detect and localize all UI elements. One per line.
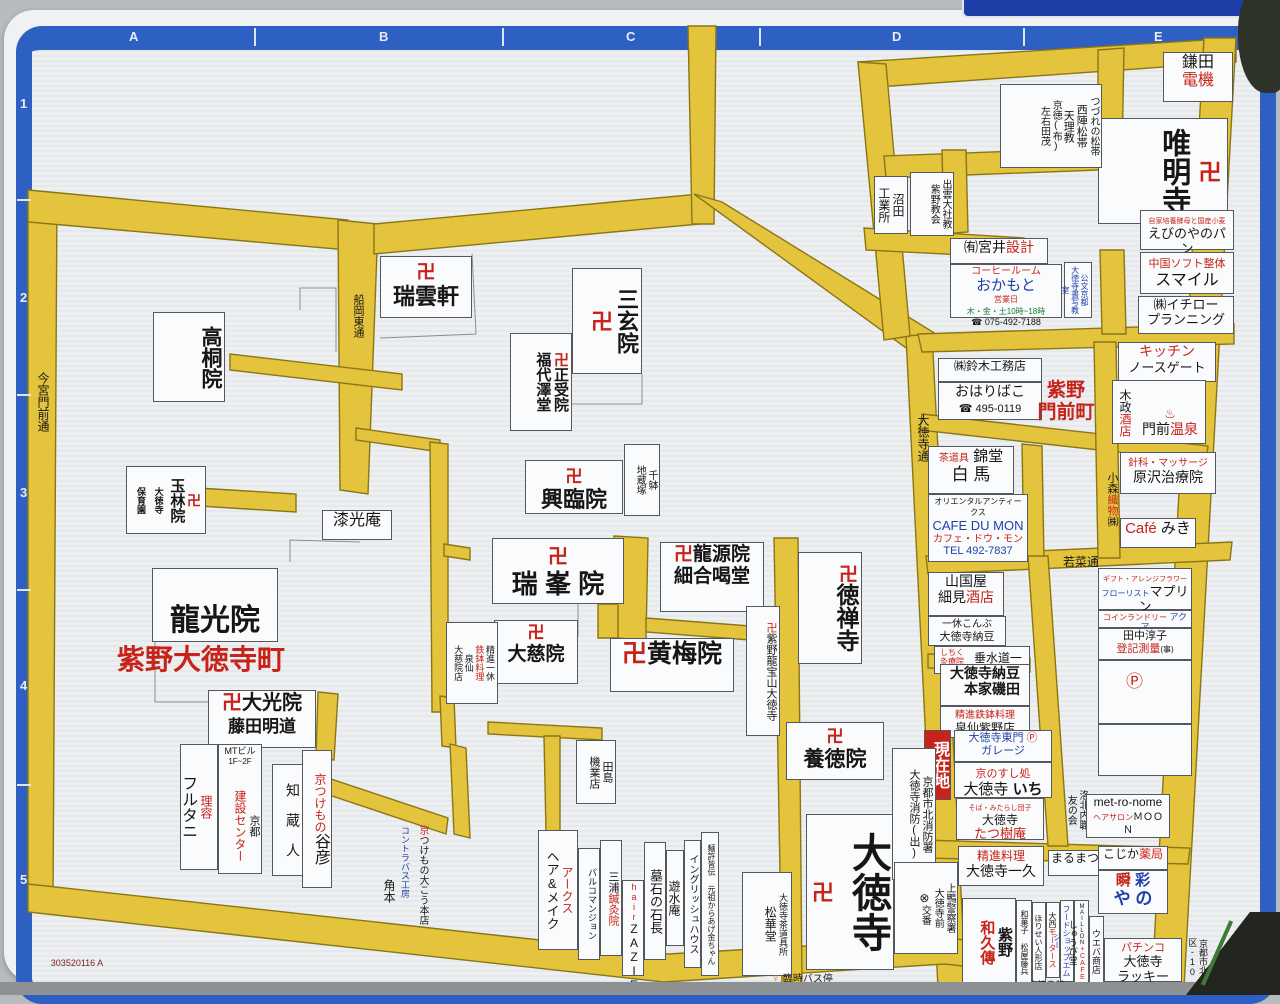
shop-furutani-barber-text: 理容 — [199, 795, 213, 819]
shop-natto-isoda-text: 大徳寺納豆 — [950, 665, 1020, 681]
district-murasakino-daitokujicho-text: 紫野大徳寺町 — [117, 644, 285, 675]
shop-ebinoya-pan-text: 自家培養酵母と国産小麦 — [1149, 218, 1226, 225]
temple-ryuhozan-daitokuji: 卍紫野龍宝山大徳寺 — [746, 606, 780, 736]
shop-monzen-onsen-text: ♨ — [1164, 406, 1176, 421]
shop-suzuki-komuten: ㈱鈴木工務店 — [938, 358, 1042, 382]
temple-korinin-text: 卍 — [566, 467, 583, 486]
shop-parco-mansion-text: パルコマンジョン — [587, 868, 597, 940]
street-sentai-jizozuka-text: 地蔵塚 — [634, 465, 645, 495]
temple-shojuin-text: 福代澤堂 — [534, 352, 551, 412]
shop-kensetsu-center-text: 京都 — [248, 815, 260, 837]
street-wakana-dori-text: 若菜通 — [1063, 555, 1099, 569]
shop-cafe-du-mon: オリエンタルアンティークスCAFE DU MONカフェ・ドウ・モンTEL 492… — [928, 494, 1028, 562]
temple-korinin: 卍興臨院 — [525, 460, 623, 514]
plate-id: 303520116 A — [32, 958, 122, 970]
shop-tajima-kigyoten-text: 田島 — [601, 761, 613, 783]
shop-tanaka-toki-text: 田中淳子 — [1123, 630, 1167, 642]
shop-izusen-daijiin-text: 鉄鉢料理 — [474, 645, 484, 681]
shop-shubido-cafe-text: MAILLON — [1079, 904, 1085, 946]
shop-komori-orimono: 小森織物㈱ — [1096, 464, 1118, 534]
temple-yotokuin: 卍養徳院 — [786, 722, 884, 780]
shop-tatsukian-text: 大徳寺 — [982, 813, 1018, 827]
temple-ryuhozan-daitokuji-text: 卍 — [765, 622, 777, 633]
temple-yuimyoji-text: 卍 — [1195, 160, 1221, 183]
shop-okamoto-coffee-text: ☎ 075-492-7188 — [971, 317, 1041, 327]
shop-shunsai-yano-text: 彩 — [1135, 872, 1150, 889]
parking-icon-1: Ⓟ — [1126, 672, 1143, 691]
shop-kitchen-northgate-text: キッチン — [1139, 343, 1195, 359]
temple-gyokurinin-text: 玉林院 — [168, 478, 185, 523]
shop-shokado-text: 大徳寺茶道具所 — [778, 893, 788, 956]
temple-yuimyoji-text: 唯明寺 — [1158, 128, 1190, 215]
shop-cafe-miki-text: Café — [1125, 520, 1157, 537]
temple-zuihoin-text: 瑞 峯 院 — [512, 569, 604, 599]
shop-pachinko-lucky: パチンコ大徳寺ラッキー — [1104, 938, 1182, 982]
shop-yamaguniya-text: 細見 — [938, 589, 966, 605]
shop-kitchen-northgate-text: ノースゲート — [1128, 360, 1205, 375]
shop-kumon-kyoshitsu: 公文京都大徳寺書写教室 — [1064, 262, 1092, 318]
shop-kumon-kyoshitsu-text: 大徳寺書写教室 — [1061, 266, 1079, 314]
ground-strip — [0, 982, 1280, 995]
shop-harasawa-chiryoin-text: 原沢治療院 — [1133, 469, 1203, 485]
shop-komori-orimono-text: ㈱ — [1106, 516, 1118, 527]
shop-miura-shinkyuin-text: 鍼灸院 — [607, 893, 619, 926]
shop-nishijin-block: つづれの松帯西陣松帯天理教京徳(布)左右田茂 — [1000, 84, 1102, 168]
temple-shikkoan: 漆光庵 — [322, 510, 392, 540]
building-police-box-text: 交番 — [919, 905, 930, 925]
shop-pachinko-lucky-text: パチンコ — [1121, 942, 1165, 954]
shop-monzen-onsen-text: 温泉 — [1170, 421, 1198, 437]
shop-hair-zazie: hairZAZIE — [622, 880, 644, 976]
shop-wakuden-text: 紫野 — [996, 927, 1013, 957]
shop-ishicho-boseki-text: 墓石の石長 — [648, 869, 663, 934]
shop-ichima-sushi: 京のすし処大徳寺 いちま — [954, 762, 1052, 798]
parking-icon-1-text: Ⓟ — [1126, 672, 1143, 691]
shop-oharibako: おはりばこ☎ 495-0119 — [938, 382, 1042, 420]
temple-ryogenin: 卍龍源院細合喝堂 — [660, 542, 764, 612]
cell-empty-2 — [1098, 724, 1192, 776]
shop-kitchen-northgate: キッチンノースゲート — [1118, 342, 1216, 382]
shop-tatsukian-text: そば・みたらし団子 — [969, 805, 1032, 812]
shop-ichima-sushi-text: 京のすし処 — [976, 768, 1031, 780]
temple-gyokurinin: 卍玉林院大徳寺保育園 — [126, 466, 206, 534]
shop-kamada-denki: 鎌田電機 — [1163, 52, 1233, 102]
shop-ishicho-boseki: 墓石の石長 — [644, 842, 666, 960]
shop-kojika-yakkyoku-text: こじか — [1103, 847, 1139, 861]
shop-nishijin-block-text: 西陣松帯 — [1075, 104, 1087, 148]
shop-english-house-text: イングリッシュハウス — [687, 854, 698, 954]
shop-nishikido-text: 錦堂 — [969, 448, 1003, 465]
shop-contrabass-kobo: コントラバス工房 — [396, 812, 410, 912]
shop-mt-building-text: MTビル — [225, 746, 256, 756]
temple-kotoin-text: 高桐院 — [199, 326, 222, 389]
shop-shubido-cafe: MAILLON+CAFEしゅうび堂 — [1074, 900, 1089, 984]
cell-empty-1 — [1098, 660, 1192, 724]
shop-oharibako-text: おはりばこ — [955, 383, 1025, 399]
shop-mt-building-text: 1F~2F — [228, 757, 251, 766]
shop-suzuki-komuten-text: ㈱鈴木工務店 — [954, 359, 1026, 373]
shop-arcs-hair-text: アークス — [560, 866, 574, 914]
shop-kimasa-saketen: 木政酒店 — [1114, 384, 1132, 442]
shop-yamaguniya-text: 山国屋 — [945, 573, 987, 589]
shop-shokado-text: 松華堂 — [763, 906, 777, 942]
shop-okamoto-coffee-text: 営業日 — [994, 295, 1018, 304]
building-police-box-text: 大徳寺前 — [932, 888, 943, 928]
shop-wakuden-text: 和久傳 — [978, 920, 995, 965]
shop-daiko-honten-text: つけもの大こう本店 — [417, 835, 428, 925]
shop-furutani-barber-text: フルタニ — [179, 775, 196, 839]
temple-ryogenin-text: 卍 — [674, 544, 693, 565]
shop-tanihiko-text: 京つけもの — [313, 773, 327, 833]
shop-kamada-denki-text: 電機 — [1182, 72, 1214, 89]
shop-marumatsu-text: まるまつ — [1051, 851, 1099, 865]
shop-numata-text: 工業所 — [877, 187, 891, 223]
shop-english-house: イングリッシュハウス — [684, 840, 701, 968]
shop-smile-seitai: 中国ソフト整体スマイル — [1140, 252, 1234, 294]
shop-cafe-du-mon-text: TEL 492-7837 — [943, 545, 1012, 557]
map-labels: 卍高桐院卍瑞雲軒船岡東通三玄院卍卍正受院福代澤堂卍興臨院卍玉林院大徳寺保育園漆光… — [0, 0, 1280, 995]
building-kita-fire-station-text: 大徳寺消防(出) — [908, 769, 920, 859]
shop-ebinoya-pan: 自家培養酵母と国産小麦えびのやのパン — [1140, 210, 1234, 250]
shop-daiko-honten-text: 京 — [417, 825, 428, 835]
shop-harasawa-chiryoin: 針科・マッサージ原沢治療院 — [1120, 452, 1216, 494]
temple-tokuzenji-text: 徳禅寺 — [833, 583, 859, 652]
shop-arcs-hair-text: ヘア&メイク — [545, 850, 560, 930]
street-funaoka-higashi-dori-text: 船岡東通 — [352, 294, 364, 338]
shop-tanihiko-text: 谷彦 — [312, 833, 329, 865]
temple-yotokuin-text: 卍 — [827, 727, 844, 746]
temple-daijiin: 卍大慈院 — [494, 620, 578, 684]
shop-tatsukian-text: たつ樹庵 — [974, 826, 1026, 841]
shop-kensetsu-center-text: 建設センター — [233, 790, 247, 862]
shop-natto-isoda: 大徳寺納豆 本家磯田 — [940, 664, 1030, 706]
shop-horisei-ningyo-text: ほりせい人形店 — [1034, 914, 1043, 970]
shop-horisei-ningyo: ほりせい人形店 — [1032, 902, 1046, 982]
temple-shojuin-text: 正受院 — [552, 367, 569, 412]
shop-shunsai-yano: 瞬 彩や の — [1098, 870, 1168, 914]
street-imamiya-monzen-dori-text: 今宮門前通 — [36, 372, 50, 432]
shop-natto-isoda-text: 本家磯田 — [950, 681, 1020, 697]
shop-tajima-kigyoten-text: 機業店 — [588, 756, 600, 789]
building-kita-fire-station: 京都市北消防署大徳寺消防(出) — [892, 748, 936, 880]
temple-shojuin-text: 卍 — [552, 352, 569, 367]
shop-daiko-honten: 京つけもの大こう本店 — [410, 812, 428, 938]
shop-cafe-du-mon-text: オリエンタルアンティークス — [934, 497, 1021, 517]
temple-ryogenin-text: 細合喝堂 — [674, 566, 750, 587]
shop-ichiro-planning-text: プランニング — [1147, 312, 1225, 327]
building-police-box-text: ⊗ — [917, 891, 931, 905]
shop-tarumizu-text: 垂水道一 — [974, 651, 1022, 665]
shop-tomon-garage-text: ガレージ — [981, 745, 1025, 757]
shop-contrabass-kobo-text: コントラバス工房 — [400, 826, 410, 898]
temple-daikoin-text: 卍 — [222, 692, 242, 714]
shop-pachinko-lucky-text: 大徳寺 — [1123, 954, 1162, 969]
shop-matsuya-tohei: 和菓子 松屋藤兵 — [1016, 900, 1032, 984]
shop-numata: 沼田工業所 — [874, 176, 908, 234]
shop-shubido-cafe-text: +CAFE — [1079, 946, 1086, 981]
shop-ueba-shoten: ウエバ商店 — [1089, 916, 1104, 986]
shop-shunsai-yano-text: 瞬 — [1116, 872, 1135, 889]
shop-shichiku-kyuryoin-text: しちく — [940, 648, 964, 657]
shop-monzen-onsen-text: 門前 — [1142, 421, 1170, 437]
shop-nishijin-block-text: つづれの松帯 — [1088, 96, 1099, 156]
shop-tanaka-toki: 田中淳子登記測量(事) — [1098, 628, 1192, 660]
shop-izusen-daijiin: 精進一休鉄鉢料理泉仙大慈院店 — [446, 622, 498, 704]
shop-kumon-kyoshitsu-text: 公文京都 — [1080, 274, 1089, 306]
temple-daijiin-text: 卍 — [528, 623, 545, 642]
district-murasakino-monzencho-text: 紫野 — [1047, 380, 1085, 401]
shop-komori-orimono-text: 織物 — [1106, 494, 1118, 516]
shop-tanaka-toki-text: 登記測量 — [1116, 643, 1160, 655]
temple-shikkoan-text: 漆光庵 — [333, 512, 381, 529]
shop-kojika-yakkyoku: こじか薬局 — [1098, 846, 1168, 870]
shop-kakumoto-text: 角本 — [382, 879, 396, 903]
shop-nishijin-block-text: 左右田茂 — [1038, 106, 1049, 146]
temple-daitokuji-text: 大徳寺 — [846, 832, 890, 952]
temple-sangenin-text: 卍 — [588, 310, 613, 332]
shop-mapurin-text: ギフト・アレンジフラワー — [1103, 576, 1187, 583]
shop-miura-shinkyuin-text: 三浦 — [607, 871, 619, 893]
building-kita-fire-station-text: 京都市北消防署 — [921, 776, 933, 853]
shop-rakuhoku-naishoku-text: 友の会 — [1065, 795, 1076, 825]
shop-okamoto-coffee-text: コーヒールーム — [971, 266, 1041, 277]
shop-nishikido-text: 白 馬 — [952, 465, 991, 484]
shop-kojika-yakkyoku-text: 薬局 — [1139, 847, 1163, 861]
temple-yuimyoji: 卍唯明寺 — [1098, 118, 1228, 224]
shop-metronome-moon-text: met-ro-nome — [1094, 795, 1163, 809]
temple-zuiunken-text: 瑞雲軒 — [393, 284, 459, 309]
shop-kimasa-saketen-text: 木政 — [1118, 389, 1132, 413]
shop-miyai-sekkei-text: ㈲宮井 — [964, 239, 1006, 255]
shop-okamoto-coffee: コーヒールームおかもと営業日木・金・土10時~18時☎ 075-492-7188 — [950, 264, 1062, 318]
shop-izusen-daijiin-text: 精進一休 — [485, 645, 495, 681]
building-police-box-text: 上鴨警察署 — [944, 883, 955, 933]
shop-okamoto-coffee-text: おかもと — [976, 277, 1036, 294]
shop-izusen-murasakino-text: 精進鉄鉢料理 — [955, 710, 1015, 721]
shop-miyai-sekkei-text: 設計 — [1006, 239, 1034, 255]
shop-chikurajin: 知 蔵 人 — [272, 764, 304, 876]
shop-numata-text: 沼田 — [891, 193, 905, 217]
photo-scene: ABCDE 12345 — [0, 0, 1280, 995]
shop-tanaka-toki-text: (事) — [1160, 645, 1173, 654]
shop-coin-laundry-aqua-text: コインランドリー — [1103, 613, 1167, 622]
district-murasakino-daitokujicho: 紫野大徳寺町 — [108, 644, 294, 678]
shop-yamaguniya-text: 酒店 — [966, 589, 994, 605]
temple-yotokuin-text: 養徳院 — [804, 748, 867, 771]
shop-karaage-kinchan-text: 麺許皆伝 元祖からあげ金ちゃん — [707, 844, 716, 965]
shop-kakumoto: 角本 — [380, 864, 396, 918]
shop-tomon-garage: 大徳寺東門 Ⓟガレージ — [954, 730, 1052, 762]
shop-cafe-miki: Café みき — [1120, 518, 1196, 548]
temple-ryokoin: 龍光院 — [152, 568, 278, 642]
shop-miyai-sekkei: ㈲宮井設計 — [950, 238, 1048, 264]
shop-parco-mansion: パルコマンジョン — [578, 848, 600, 960]
building-police-box: 上鴨警察署大徳寺前⊗交番 — [894, 862, 958, 954]
shop-matsuya-tohei-text: 和菓子 松屋藤兵 — [1020, 910, 1029, 975]
shop-tomon-garage-text: Ⓟ — [1023, 732, 1037, 744]
shop-komori-orimono-text: 小森 — [1106, 472, 1118, 494]
temple-daijiin-text: 大慈院 — [507, 644, 564, 665]
temple-daitokuji: 大徳寺卍 — [806, 814, 894, 970]
shop-cafe-du-mon-text: カフェ・ドウ・モン — [933, 534, 1023, 545]
district-murasakino-monzencho: 紫野門前町 — [1036, 380, 1096, 424]
temple-obaiin-text: 卍 — [622, 640, 647, 668]
shop-oharibako-text: ☎ 495-0119 — [959, 403, 1021, 415]
temple-gyokurinin-text: 大徳寺 — [154, 487, 164, 514]
shop-hair-zazie-text: hair — [629, 882, 639, 922]
shop-izumo-taishakyo: 出雲大社教紫野教会 — [910, 172, 954, 236]
shop-ichiro-planning-text: ㈱イチロー — [1153, 297, 1218, 312]
shop-furutani-barber: 理容フルタニ — [180, 744, 218, 870]
temple-ryogenin-text: 龍源院 — [693, 544, 750, 565]
temple-tokuzenji-text: 卍 — [836, 564, 857, 583]
temple-shojuin: 卍正受院福代澤堂 — [510, 333, 572, 431]
shop-ikkyu-konbu: 一休こんぶ大徳寺納豆 — [928, 616, 1006, 646]
shop-shokado: 大徳寺茶道具所松華堂 — [742, 872, 792, 976]
shop-ikkyu-konbu-text: 大徳寺納豆 — [940, 631, 995, 643]
shop-mapurin: ギフト・アレンジフラワーフローリストマプリン — [1098, 568, 1192, 610]
temple-obaiin: 卍黄梅院 — [610, 638, 734, 692]
temple-daikoin-text: 大光院 — [242, 692, 302, 714]
shop-harasawa-chiryoin-text: 針科・マッサージ — [1128, 458, 1208, 469]
shop-tajima-kigyoten: 田島機業店 — [576, 740, 616, 804]
shop-cafe-miki-text: みき — [1157, 520, 1191, 537]
temple-sangenin-text: 三玄院 — [614, 288, 639, 354]
temple-tokuzenji: 卍徳禅寺 — [798, 552, 862, 664]
shop-yusuian: 遊水庵 — [666, 850, 684, 946]
temple-daikoin-text: 藤田明道 — [228, 717, 296, 736]
shop-ikkyu-ryori: 精進料理大徳寺一久 — [958, 846, 1044, 886]
shop-rakuhoku-naishoku: 洛北内職友の会 — [1060, 778, 1088, 842]
street-sentai-jizozuka-text: 千躰 — [646, 470, 657, 490]
shop-chikurajin-text: 知 蔵 人 — [285, 783, 301, 857]
shop-smile-seitai-text: 中国ソフト整体 — [1149, 258, 1226, 270]
shop-ikkyu-konbu-text: 一休こんぶ — [942, 619, 992, 630]
street-funaoka-higashi-dori: 船岡東通 — [346, 274, 364, 358]
temple-kotoin: 高桐院 — [153, 312, 225, 402]
shop-okamoto-coffee-text: 木・金・土10時~18時 — [967, 307, 1045, 316]
temple-daikoin: 卍大光院藤田明道 — [208, 690, 316, 748]
shop-nishijin-block-text: 京徳(布) — [1050, 100, 1061, 152]
shop-yamaguniya: 山国屋細見酒店 — [928, 572, 1004, 616]
temple-ryuhozan-daitokuji-text: 紫野龍宝山大徳寺 — [765, 633, 777, 721]
shop-nishikido: 茶道具 錦堂白 馬 — [928, 446, 1014, 494]
shop-ikkyu-ryori-text: 大徳寺一久 — [966, 863, 1036, 879]
shop-metronome-moon: met-ro-nomeヘアサロンＭＯＯＮ — [1086, 794, 1170, 838]
shop-monzen-onsen: ♨門前温泉 — [1136, 406, 1204, 442]
shop-ichiro-planning: ㈱イチロープランニング — [1138, 296, 1234, 334]
shop-kimasa-saketen-text: 酒店 — [1118, 413, 1132, 437]
temple-sangenin: 三玄院卍 — [572, 268, 642, 374]
shop-ikkyu-ryori-text: 精進料理 — [977, 849, 1025, 863]
shop-tatsukian: そば・みたらし団子大徳寺たつ樹庵 — [956, 798, 1044, 840]
shop-izusen-daijiin-text: 大慈院店 — [453, 645, 463, 681]
street-imamiya-monzen-dori: 今宮門前通 — [32, 364, 50, 440]
shop-coin-laundry-aqua: コインランドリー アクア — [1098, 610, 1192, 628]
temple-zuiunken: 卍瑞雲軒 — [380, 256, 472, 318]
shop-smile-seitai-text: スマイル — [1155, 272, 1219, 289]
shop-tanihiko: 京つけもの谷彦 — [302, 750, 332, 888]
shop-shubido-cafe-text: しゅうび堂 — [1068, 920, 1078, 965]
temple-zuihoin-text: 卍 — [548, 546, 568, 568]
shop-miura-shinkyuin: 三浦鍼灸院 — [600, 840, 622, 956]
shop-mapurin-text: フローリスト — [1101, 589, 1149, 598]
temple-obaiin-text: 黄梅院 — [647, 640, 722, 668]
shop-tomon-garage-text: 大徳寺東門 — [968, 732, 1023, 744]
shop-izusen-daijiin-text: 泉仙 — [464, 654, 474, 672]
plate-id-text: 303520116 A — [51, 958, 103, 968]
shop-karaage-kinchan: 麺許皆伝 元祖からあげ金ちゃん — [701, 832, 719, 976]
shop-nishikido-text: 茶道具 — [939, 453, 969, 464]
shop-kensetsu-center: 京都建設センター — [222, 782, 260, 870]
temple-ryokoin-text: 龍光院 — [170, 604, 260, 637]
shop-marumatsu: まるまつ — [1048, 850, 1102, 876]
district-murasakino-monzencho-text: 門前町 — [1037, 402, 1094, 423]
top-right-plate — [962, 0, 1278, 18]
shop-onishi-motors-text: 大西 — [1048, 912, 1057, 928]
temple-daitokuji-text: 卍 — [809, 881, 834, 903]
shop-ueba-shoten-text: ウエバ商店 — [1091, 929, 1101, 974]
shop-arcs-hair: アークスヘア&メイク — [538, 830, 578, 950]
street-sentai-jizozuka: 千躰地蔵塚 — [624, 444, 660, 516]
shop-shunsai-yano-text: や の — [1114, 889, 1153, 908]
shop-izumo-taishakyo-text: 紫野教会 — [928, 184, 939, 224]
temple-gyokurinin-text: 卍 — [186, 493, 202, 507]
shop-metronome-moon-text: ヘアサロン — [1093, 813, 1133, 822]
temple-korinin-text: 興臨院 — [541, 487, 607, 512]
shop-yusuian-text: 遊水庵 — [667, 880, 681, 916]
shop-izumo-taishakyo-text: 出雲大社教 — [940, 179, 951, 229]
temple-zuiunken-text: 卍 — [416, 262, 435, 283]
temple-gyokurinin-text: 保育園 — [136, 487, 146, 514]
temple-zuihoin: 卍瑞 峯 院 — [492, 538, 624, 604]
shop-cafe-du-mon-text: CAFE DU MON — [933, 518, 1024, 533]
shop-kamada-denki-text: 鎌田 — [1182, 54, 1214, 71]
shop-nishijin-block-text: 天理教 — [1062, 110, 1074, 143]
shop-wakuden: 紫野和久傳 — [962, 898, 1016, 986]
shop-ichima-sushi-text: 大徳寺 — [963, 781, 1012, 798]
